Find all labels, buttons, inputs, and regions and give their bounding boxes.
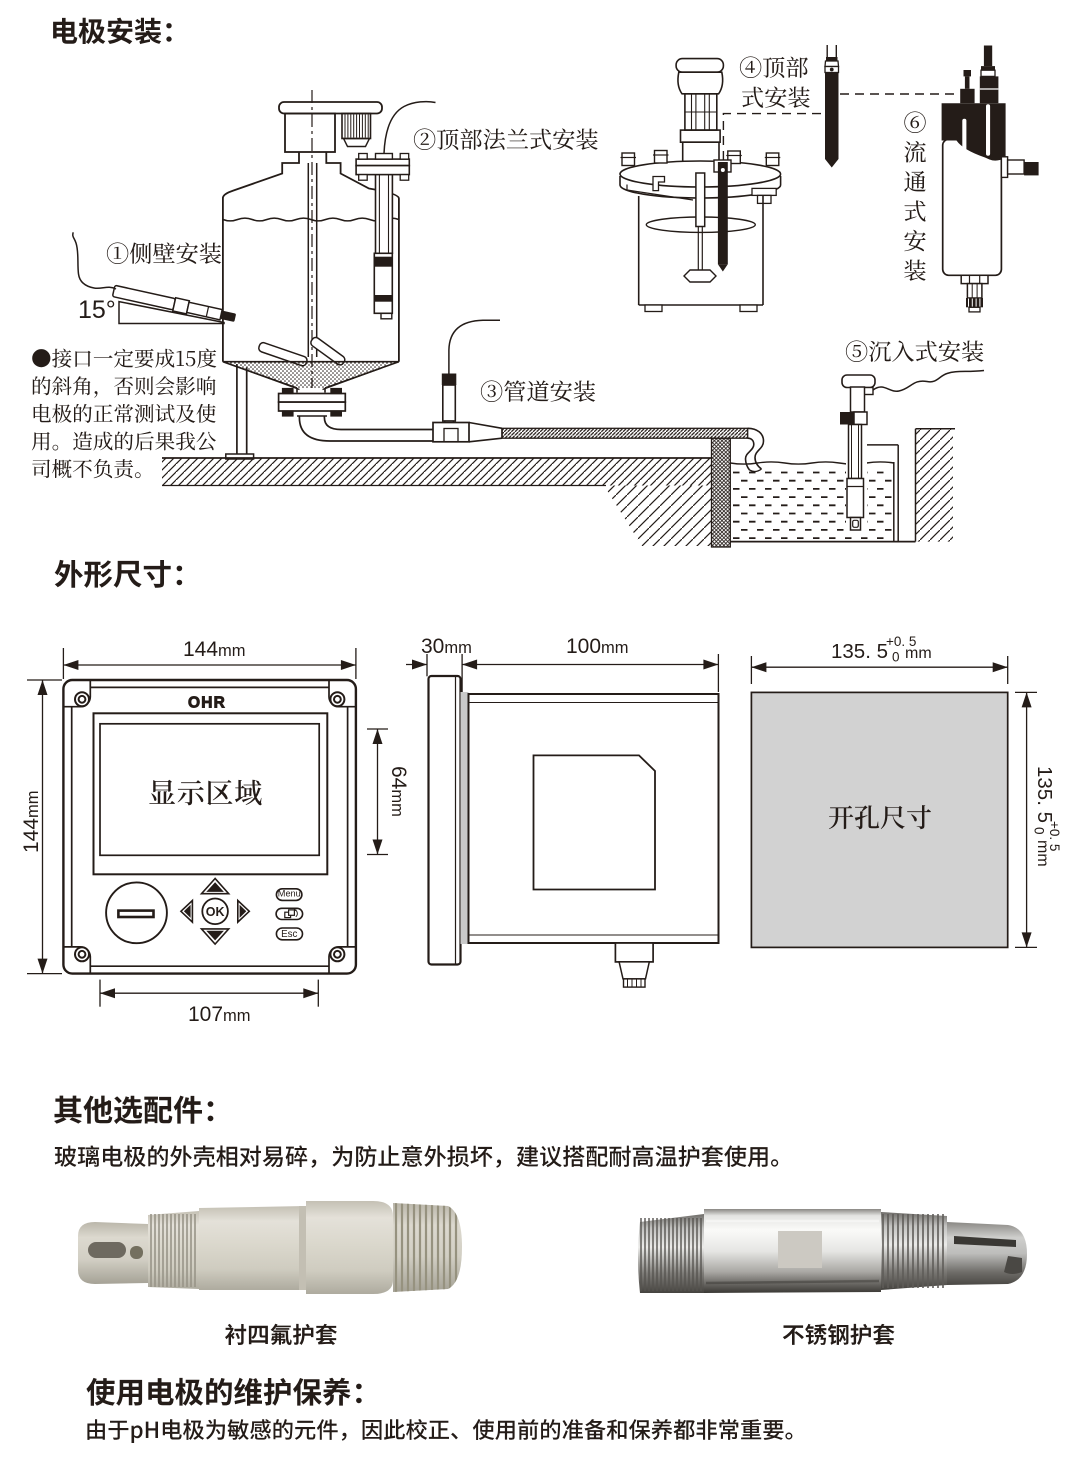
svg-text:144mm: 144mm (183, 638, 246, 661)
svg-text:64mm: 64mm (387, 766, 410, 817)
svg-text:OHR: OHR (188, 694, 226, 711)
svg-text:144mm: 144mm (20, 790, 43, 853)
svg-text:mm: mm (905, 645, 932, 662)
svg-text:Menu: Menu (278, 889, 301, 899)
svg-text:0: 0 (892, 650, 900, 665)
svg-text:135. 5: 135. 5 (831, 640, 888, 663)
svg-text:107mm: 107mm (188, 1003, 251, 1026)
svg-text:mm: mm (1034, 840, 1051, 867)
svg-text:100mm: 100mm (566, 635, 629, 658)
svg-text:135. 5: 135. 5 (1033, 766, 1056, 823)
svg-text:30mm: 30mm (421, 635, 472, 658)
svg-text:Esc: Esc (281, 929, 297, 940)
svg-text:0: 0 (1032, 827, 1047, 835)
svg-text:15°: 15° (78, 296, 116, 324)
svg-text:OK: OK (206, 905, 225, 919)
